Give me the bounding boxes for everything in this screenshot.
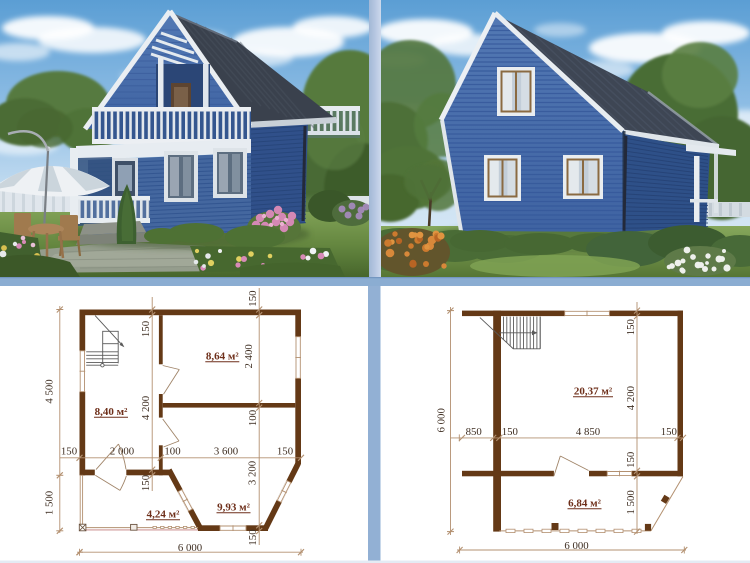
svg-text:850: 850 [466,426,482,438]
svg-text:6 000: 6 000 [178,542,202,554]
svg-text:6 000: 6 000 [436,408,448,432]
svg-text:3 200: 3 200 [247,461,259,485]
svg-text:8,40 м²: 8,40 м² [95,406,128,418]
svg-text:6,84 м²: 6,84 м² [568,498,601,510]
svg-text:8,64 м²: 8,64 м² [206,351,239,363]
svg-text:150: 150 [502,426,518,438]
svg-text:1 500: 1 500 [44,491,56,515]
svg-text:150: 150 [247,529,259,545]
svg-text:20,37 м²: 20,37 м² [574,386,613,398]
svg-text:150: 150 [661,426,677,438]
svg-text:100: 100 [247,410,259,426]
svg-text:4 200: 4 200 [625,386,637,410]
svg-text:4 200: 4 200 [140,396,152,420]
svg-text:150: 150 [61,446,77,458]
svg-text:6 000: 6 000 [564,540,588,552]
svg-text:150: 150 [625,319,637,335]
svg-text:4,24 м²: 4,24 м² [147,509,180,521]
svg-text:3 600: 3 600 [214,446,238,458]
svg-text:150: 150 [247,290,259,306]
svg-text:1 500: 1 500 [625,490,637,514]
svg-text:4 500: 4 500 [44,379,56,403]
svg-text:150: 150 [140,475,152,491]
svg-text:4 850: 4 850 [576,426,600,438]
svg-text:150: 150 [277,446,293,458]
svg-text:150: 150 [625,452,637,468]
svg-text:9,93 м²: 9,93 м² [217,502,250,514]
svg-text:2 000: 2 000 [110,446,134,458]
svg-text:2 400: 2 400 [243,344,255,368]
svg-text:100: 100 [164,446,180,458]
svg-text:150: 150 [140,321,152,337]
